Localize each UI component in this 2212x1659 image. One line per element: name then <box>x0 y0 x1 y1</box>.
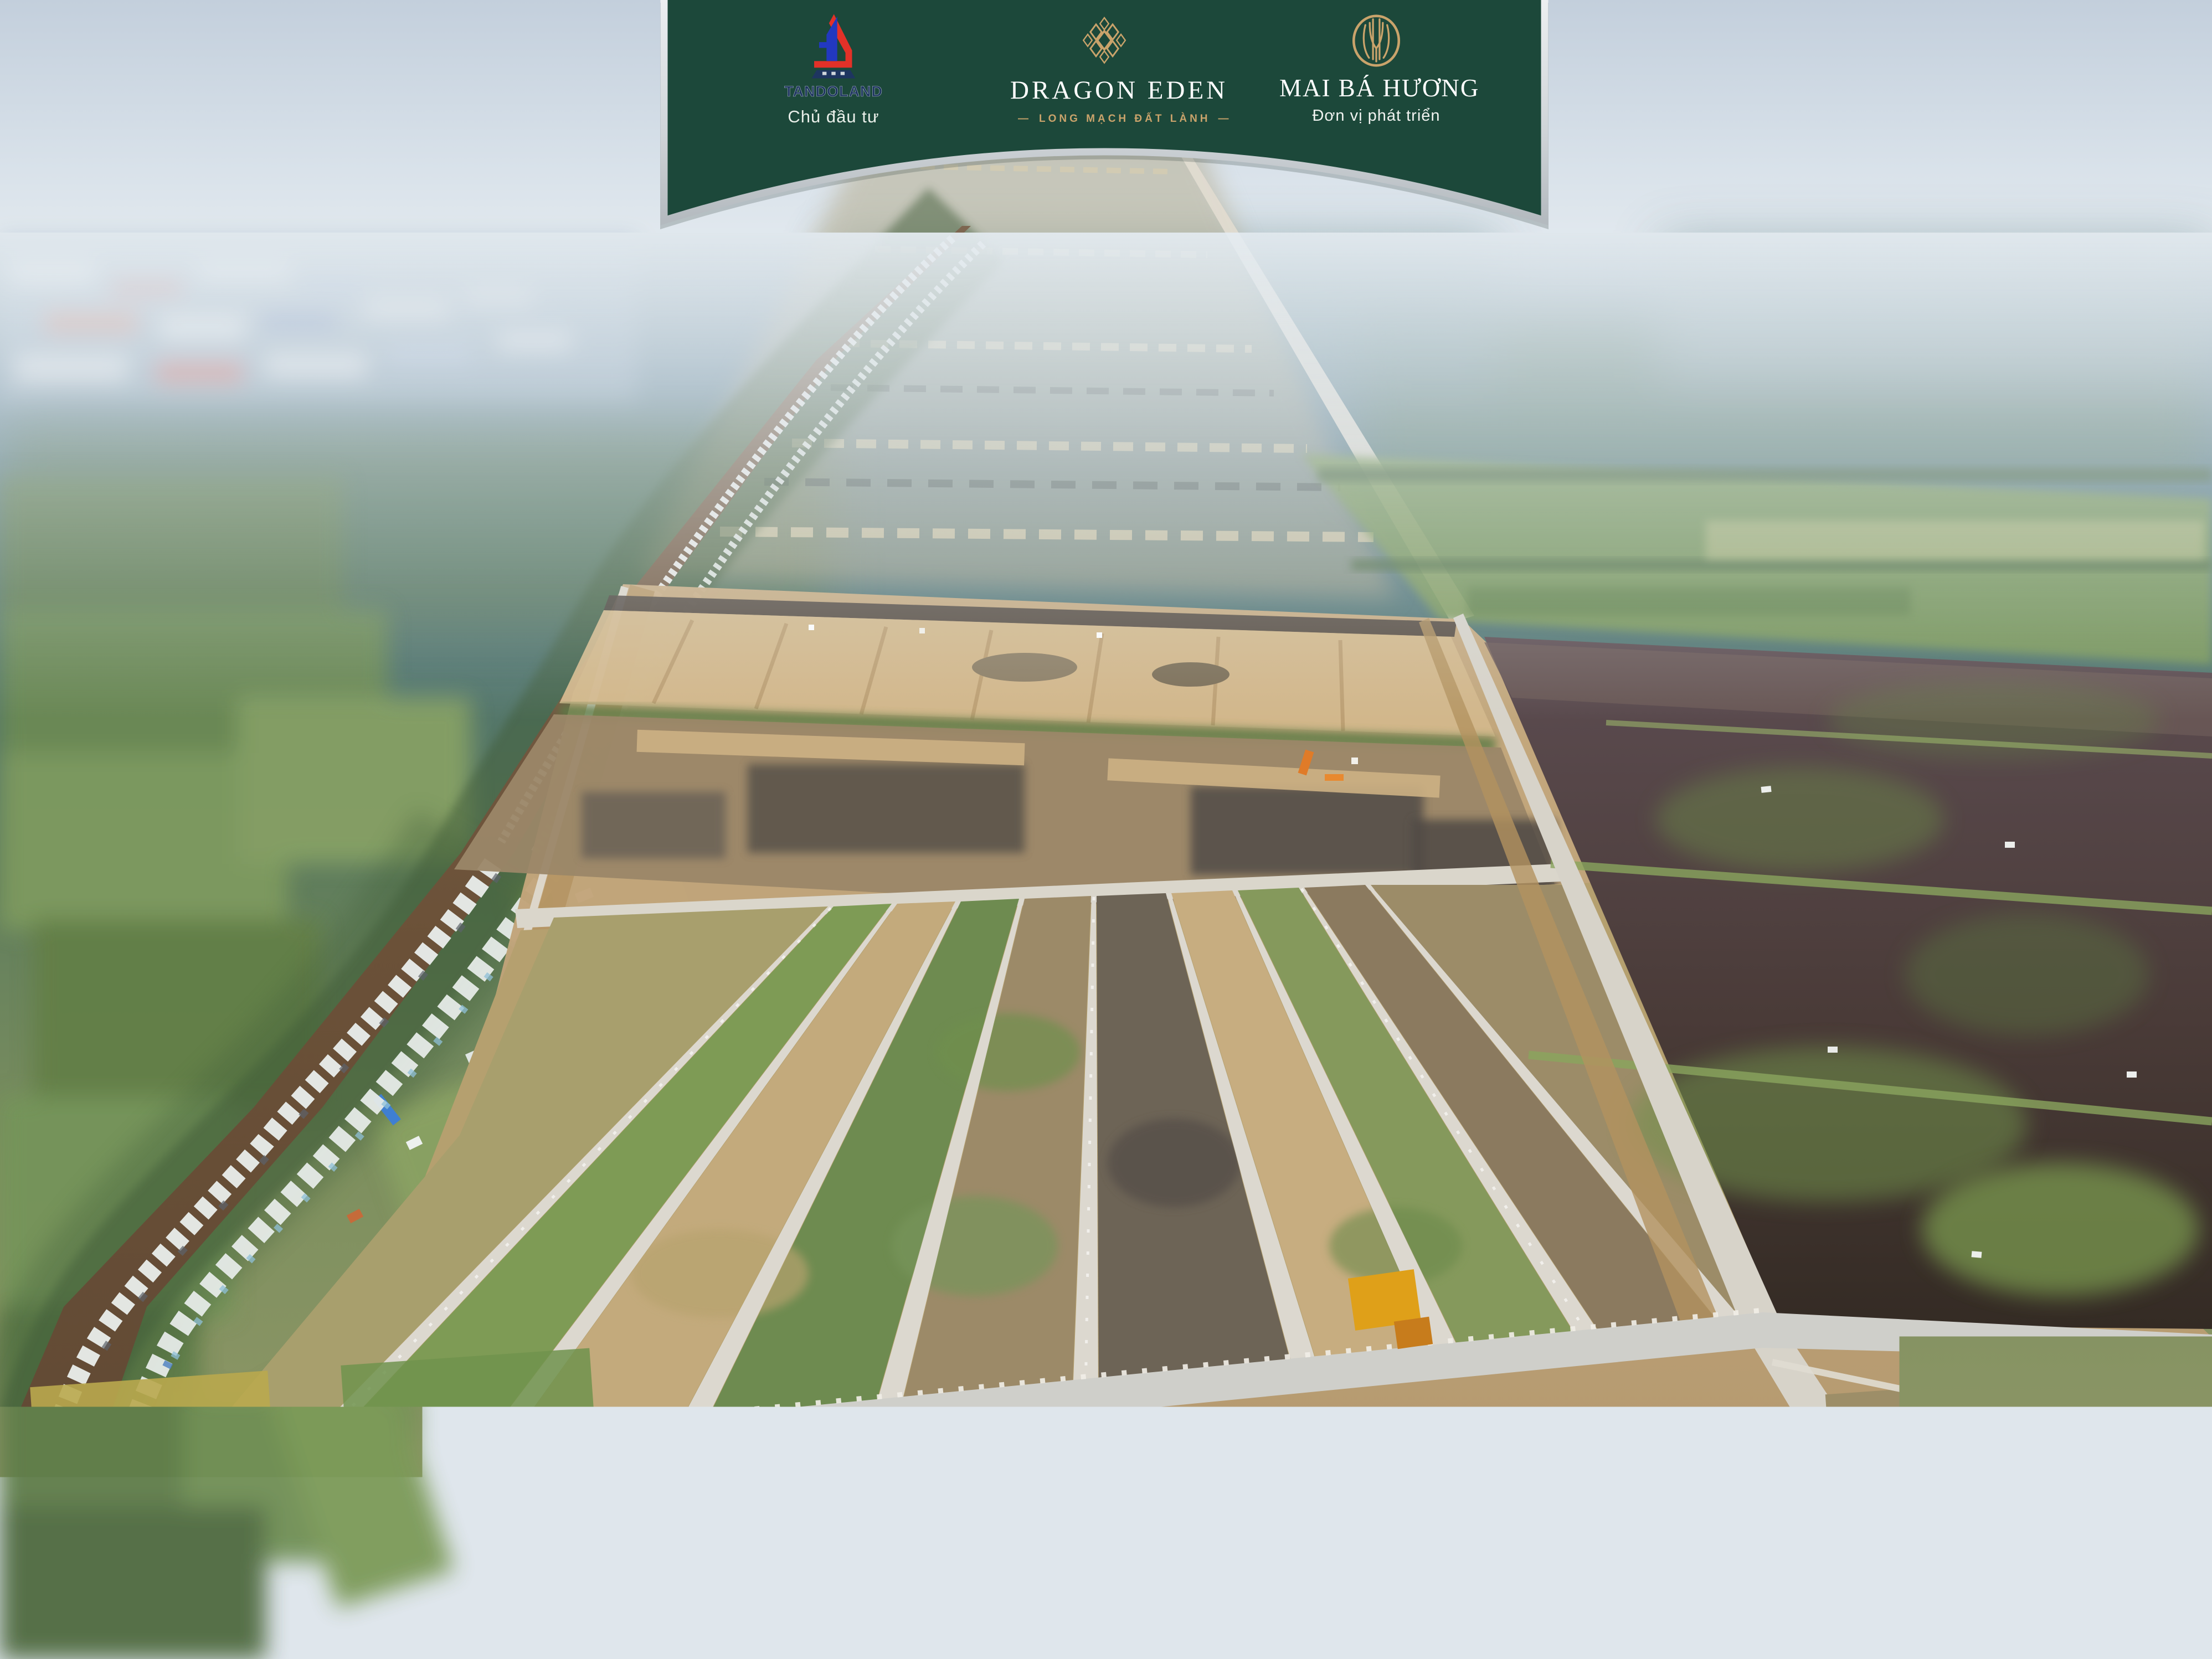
aerial-photo <box>0 0 2212 1659</box>
tandoland-caption: Chủ đầu tư <box>767 107 900 127</box>
dragon-eden-wordmark: DRAGON EDEN <box>1010 75 1198 105</box>
mai-ba-huong-caption: Đơn vị phát triển <box>1279 107 1473 125</box>
tagline-text: LONG MẠCH ĐẤT LÀNH <box>1039 113 1211 125</box>
logo-tandoland: TANDOLAND Chủ đầu tư <box>767 13 900 127</box>
tagline-left-dash: — <box>1018 113 1031 125</box>
dragon-eden-tagline: —LONG MẠCH ĐẤT LÀNH— <box>1010 113 1198 125</box>
brand-banner: TANDOLAND Chủ đầu tư <box>660 0 1549 244</box>
mai-ba-huong-wordmark: MAI BÁ HƯƠNG <box>1279 74 1473 102</box>
tandoland-wordmark: TANDOLAND <box>767 83 900 100</box>
logo-dragon-eden: DRAGON EDEN —LONG MẠCH ĐẤT LÀNH— <box>1010 11 1198 125</box>
mai-ba-huong-reed-circle-icon <box>1351 13 1402 68</box>
logo-mai-ba-huong: MAI BÁ HƯƠNG Đơn vị phát triển <box>1279 13 1473 125</box>
dragon-eden-lattice-icon <box>1078 11 1131 71</box>
banner-logos: TANDOLAND Chủ đầu tư <box>660 0 1549 244</box>
aerial-photo-screenshot: TANDOLAND Chủ đầu tư <box>0 0 2212 1659</box>
tagline-right-dash: — <box>1218 113 1232 125</box>
horizon-haze <box>0 233 2212 720</box>
tandoland-building-icon <box>803 13 865 81</box>
